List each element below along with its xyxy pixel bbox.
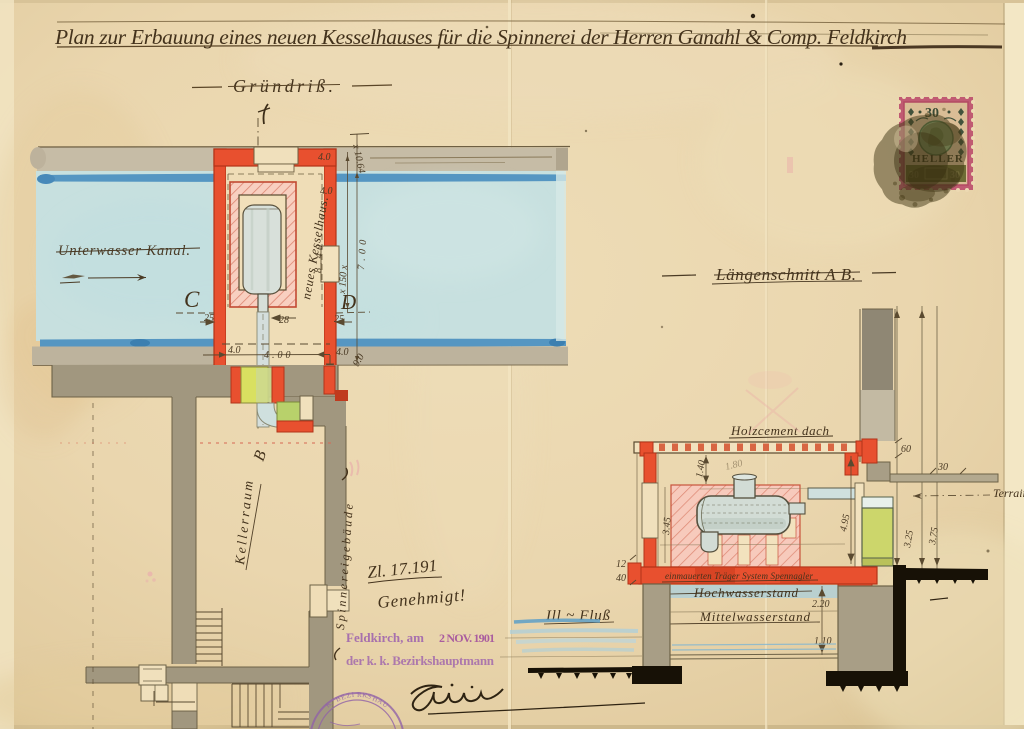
svg-text:30: 30 <box>937 462 948 473</box>
svg-text:4.0: 4.0 <box>318 152 331 163</box>
svg-text:40: 40 <box>616 573 626 584</box>
svg-text:4.00: 4.00 <box>264 350 294 361</box>
svg-text:der k. k. Bezirkshauptmann: der k. k. Bezirkshauptmann <box>346 653 495 668</box>
svg-text:Feldkirch, am: Feldkirch, am <box>346 630 424 645</box>
svg-text:C: C <box>184 287 200 312</box>
svg-text:2 NOV. 1901: 2 NOV. 1901 <box>439 631 495 645</box>
svg-text:D: D <box>340 290 356 314</box>
svg-text:8.40: 8.40 <box>313 245 325 274</box>
svg-text:12: 12 <box>616 559 626 570</box>
svg-text:3.45: 3.45 <box>661 517 674 536</box>
svg-text:4.0: 4.0 <box>336 347 349 358</box>
svg-text:Terrain: Terrain <box>993 486 1024 500</box>
svg-text:60: 60 <box>901 444 911 455</box>
svg-text:Holzcement dach: Holzcement dach <box>730 423 829 438</box>
svg-text:4.0: 4.0 <box>228 345 241 356</box>
svg-text:28: 28 <box>279 315 289 326</box>
svg-text:2.20: 2.20 <box>812 599 830 610</box>
svg-text:4.0: 4.0 <box>320 186 333 197</box>
svg-text:einmauerten Träger System Spen: einmauerten Träger System Spennagler <box>665 571 813 581</box>
